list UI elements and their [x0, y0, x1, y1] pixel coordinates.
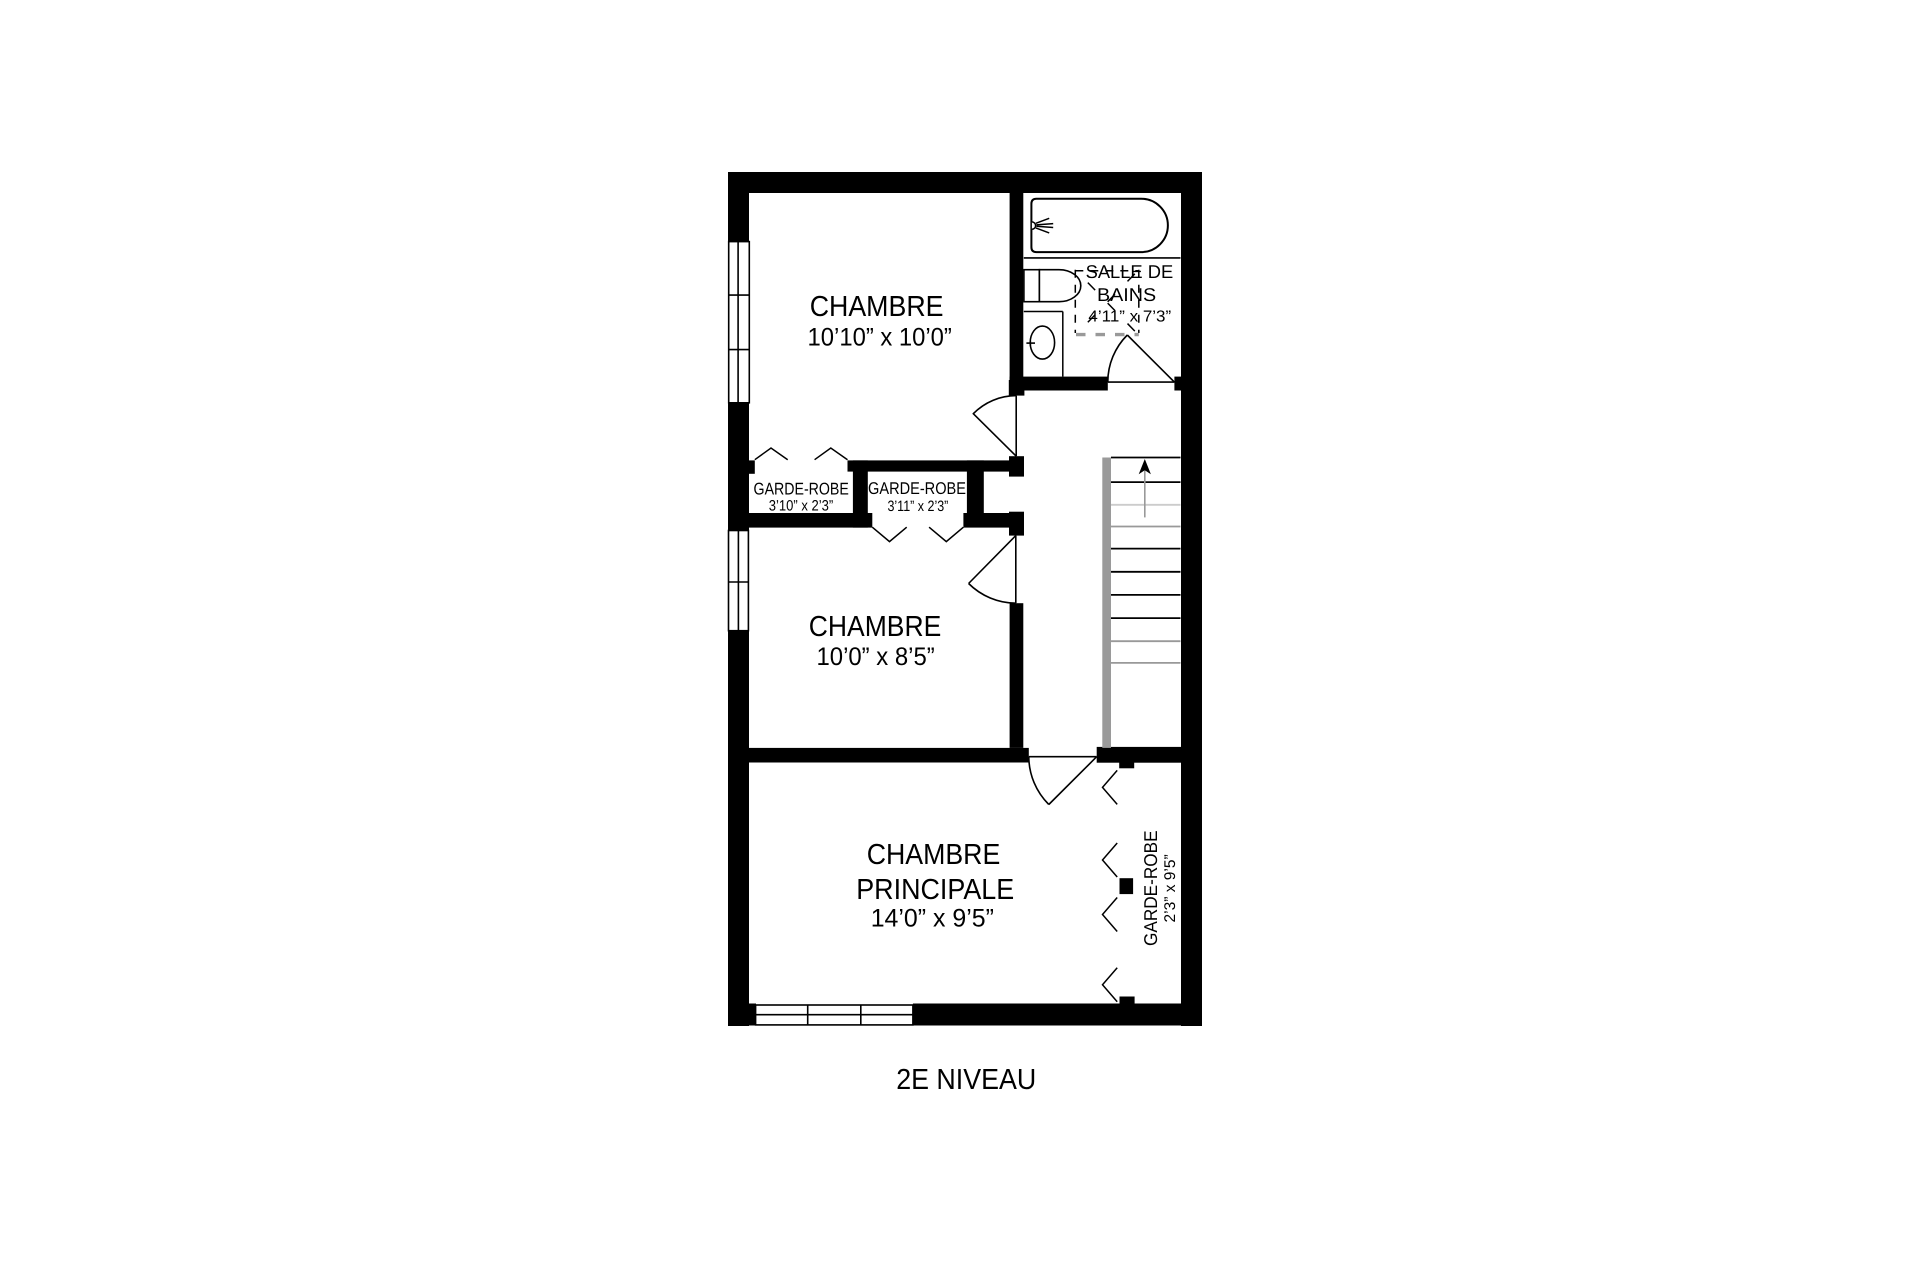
svg-text:PRINCIPALE: PRINCIPALE [856, 874, 1014, 906]
svg-text:CHAMBRE: CHAMBRE [867, 839, 1001, 871]
svg-text:BAINS: BAINS [1097, 284, 1156, 305]
svg-text:2’3” x 9’5”: 2’3” x 9’5” [1162, 854, 1179, 922]
svg-text:3’10” x 2’3”: 3’10” x 2’3” [769, 498, 833, 515]
svg-text:CHAMBRE: CHAMBRE [809, 611, 942, 643]
svg-text:GARDE-ROBE: GARDE-ROBE [868, 479, 966, 498]
svg-text:10’10” x 10’0”: 10’10” x 10’0” [808, 323, 952, 351]
svg-text:14’0” x 9’5”: 14’0” x 9’5” [871, 905, 994, 933]
svg-text:CHAMBRE: CHAMBRE [810, 291, 944, 323]
svg-text:SALLE DE: SALLE DE [1086, 261, 1174, 282]
svg-text:3’11” x 2’3”: 3’11” x 2’3” [887, 498, 948, 515]
svg-text:GARDE-ROBE: GARDE-ROBE [754, 480, 849, 499]
svg-text:4’11” x 7’3”: 4’11” x 7’3” [1088, 308, 1171, 325]
svg-text:2E NIVEAU: 2E NIVEAU [896, 1064, 1036, 1096]
svg-text:GARDE-ROBE: GARDE-ROBE [1140, 830, 1161, 946]
svg-text:10’0” x 8’5”: 10’0” x 8’5” [817, 643, 935, 671]
